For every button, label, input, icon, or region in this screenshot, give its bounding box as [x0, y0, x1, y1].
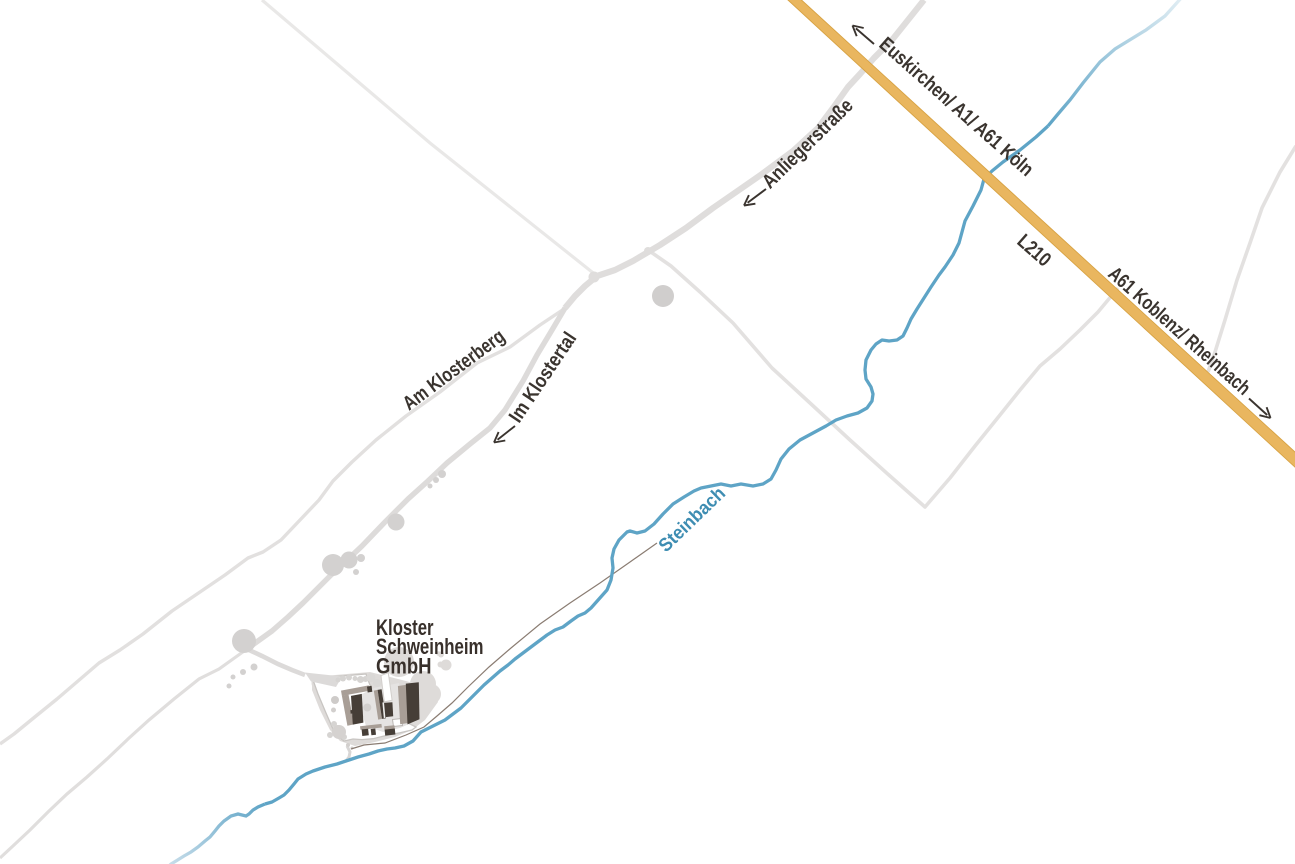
svg-text:GmbH: GmbH: [376, 653, 432, 678]
